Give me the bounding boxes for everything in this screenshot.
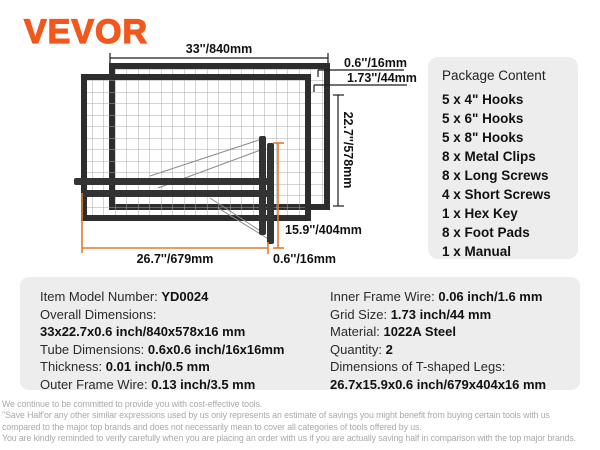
- spec-label: Dimensions of T-shaped Legs:: [330, 359, 505, 374]
- dim-width-label: 33''/840mm: [186, 42, 252, 56]
- spec-row: Outer Frame Wire: 0.13 inch/3.5 mm: [40, 376, 325, 394]
- dim-tube-top-label: 0.6''/16mm: [344, 56, 407, 70]
- package-item: 8 x Long Screws: [442, 166, 572, 185]
- spec-value: 33x22.7x0.6 inch/840x578x16 mm: [40, 324, 245, 339]
- spec-label: Grid Size:: [330, 307, 391, 322]
- spec-row: Dimensions of T-shaped Legs:: [330, 358, 575, 376]
- package-item: 8 x Foot Pads: [442, 223, 572, 242]
- spec-row: Item Model Number: YD0024: [40, 288, 325, 306]
- leg-bar: [82, 190, 274, 197]
- spec-row: Overall Dimensions:: [40, 306, 325, 324]
- package-item: 1 x Hex Key: [442, 204, 572, 223]
- disclaimer-line: ''Save Half'or any other similar express…: [2, 410, 600, 421]
- spec-value: 2: [386, 342, 393, 357]
- package-content-box: Package Content 5 x 4" Hooks 5 x 6" Hook…: [428, 57, 578, 259]
- spec-value: YD0024: [161, 289, 208, 304]
- spec-row: Thickness: 0.01 inch/0.5 mm: [40, 358, 325, 376]
- spec-value: 0.01 inch/0.5 mm: [106, 359, 210, 374]
- disclaimer-text: We continue to be committed to provide y…: [2, 399, 600, 445]
- spec-label: Material:: [330, 324, 383, 339]
- package-item: 8 x Metal Clips: [442, 147, 572, 166]
- dim-height-label: 22.7''/578mm: [341, 112, 355, 189]
- spec-column-right: Inner Frame Wire: 0.06 inch/1.6 mm Grid …: [330, 288, 575, 394]
- package-item: 4 x Short Screws: [442, 185, 572, 204]
- spec-value: 1022A Steel: [383, 324, 456, 339]
- dim-grid-size-label: 1.73''/44mm: [347, 71, 417, 85]
- package-content-title: Package Content: [442, 67, 572, 85]
- spec-label: Inner Frame Wire:: [330, 289, 438, 304]
- spec-label: Overall Dimensions:: [40, 307, 156, 322]
- spec-value: 0.6x0.6 inch/16x16mm: [148, 342, 285, 357]
- leg-bar: [74, 178, 268, 185]
- package-item: 5 x 6" Hooks: [442, 109, 572, 128]
- leg-crossbar: [259, 136, 266, 235]
- spec-column-left: Item Model Number: YD0024 Overall Dimens…: [40, 288, 325, 394]
- package-item: 5 x 8" Hooks: [442, 128, 572, 147]
- spec-row: Material: 1022A Steel: [330, 323, 575, 341]
- dim-leg-width-label: 15.9''/404mm: [285, 223, 362, 237]
- spec-row: Quantity: 2: [330, 341, 575, 359]
- spec-row: Grid Size: 1.73 inch/44 mm: [330, 306, 575, 324]
- spec-row: 26.7x15.9x0.6 inch/679x404x16 mm: [330, 376, 575, 394]
- spec-value: 0.13 inch/3.5 mm: [151, 377, 255, 392]
- spec-row: 33x22.7x0.6 inch/840x578x16 mm: [40, 323, 325, 341]
- disclaimer-line: We continue to be committed to provide y…: [2, 399, 600, 410]
- spec-label: Thickness:: [40, 359, 106, 374]
- product-spec-image: VEVOR: [0, 0, 600, 450]
- spec-value: 1.73 inch/44 mm: [391, 307, 491, 322]
- disclaimer-line: compared to the major top brands and doe…: [2, 422, 600, 433]
- package-item: 1 x Manual: [442, 242, 572, 261]
- dim-leg-length-label: 26.7''/679mm: [137, 252, 214, 266]
- spec-label: Outer Frame Wire:: [40, 377, 151, 392]
- specifications-panel: Item Model Number: YD0024 Overall Dimens…: [20, 277, 580, 390]
- leg-crossbar: [267, 143, 274, 244]
- disclaimer-line: You are kindly reminded to verify carefu…: [2, 433, 600, 444]
- spec-row: Tube Dimensions: 0.6x0.6 inch/16x16mm: [40, 341, 325, 359]
- spec-value: 0.06 inch/1.6 mm: [438, 289, 542, 304]
- package-item: 5 x 4" Hooks: [442, 90, 572, 109]
- dim-tube-bottom-label: 0.6''/16mm: [273, 252, 336, 266]
- spec-value: 26.7x15.9x0.6 inch/679x404x16 mm: [330, 377, 546, 392]
- spec-label: Tube Dimensions:: [40, 342, 148, 357]
- spec-label: Item Model Number:: [40, 289, 161, 304]
- spec-row: Inner Frame Wire: 0.06 inch/1.6 mm: [330, 288, 575, 306]
- spec-label: Quantity:: [330, 342, 386, 357]
